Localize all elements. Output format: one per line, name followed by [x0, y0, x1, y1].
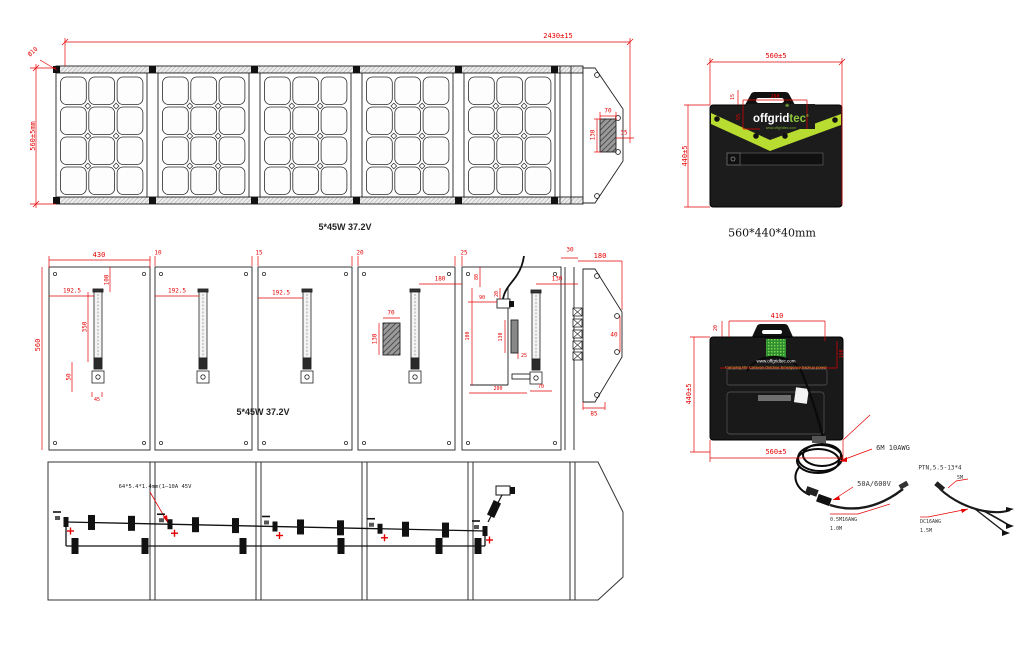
brand-logo: ❋ offgridtec® www.offgridtec.com	[747, 104, 815, 130]
dim-caseback-top-width: 410	[771, 312, 784, 320]
brand-flower-icon: ❋	[785, 101, 789, 109]
dim-back-leg-offset-1: 192.5	[63, 288, 81, 295]
dim-back-gap-1: 10	[154, 250, 161, 257]
drawing-art	[0, 0, 1022, 655]
case-back-art	[690, 321, 1014, 536]
plug-spec-label: PTN,5.5-13*4	[918, 465, 961, 472]
dim-back-pocket-height: 130	[372, 334, 379, 345]
dim-front-overall-width: 2430±15	[543, 32, 573, 40]
caseback-tagline: Camping RV Caravan Outdoor Emergency bac…	[725, 365, 827, 370]
dim-back-flap-width: 180	[594, 252, 607, 260]
dim-caseback-width: 560±5	[765, 448, 786, 456]
dim-back-p5-box: 90	[479, 295, 485, 301]
dim-back-p5-small: 20	[494, 291, 500, 297]
caseback-url: www.offgridtec.com	[757, 359, 796, 364]
dim-back-p5-leg: 130	[552, 276, 563, 283]
dim-back-leg-top: 100	[104, 275, 111, 286]
dim-back-leg-offset-2: 192.5	[168, 288, 186, 295]
dim-back-strip-width: 30	[566, 247, 573, 254]
dim-case-handle-inset: 15	[730, 94, 736, 100]
brand-tagline: www.offgridtec.com	[747, 126, 815, 130]
dim-back-pocket-width: 70	[387, 310, 394, 317]
front-view-caption: 5*45W 37.2V	[318, 222, 371, 232]
plug-length-label: 5M	[957, 475, 963, 481]
dim-case-logo-height: 55	[736, 114, 742, 120]
dim-back-panel-width: 430	[93, 251, 106, 259]
dim-case-front-height: 440±5	[681, 145, 689, 166]
dim-caseback-height: 440±5	[685, 383, 693, 404]
dim-back-p5-inner: 100	[465, 331, 471, 340]
dim-front-height: 560±5mm	[29, 121, 37, 151]
back-view-art	[49, 256, 622, 450]
dim-front-pocket-width: 70	[604, 108, 611, 115]
cable-main-label: 6M 10AWG	[876, 444, 910, 452]
dim-back-gap-4: 25	[460, 250, 467, 257]
dim-back-leg4-span: 180	[435, 276, 446, 283]
ext1-length-label: 1.0M	[830, 526, 842, 532]
dim-back-leg-bottom: 50	[66, 373, 73, 380]
dim-back-leg-offset-3: 192.5	[272, 290, 290, 297]
dim-back-leg-foot: 45	[94, 397, 100, 403]
back-view-caption: 5*45W 37.2V	[236, 407, 289, 417]
connector-label: 50A/600V	[857, 480, 891, 488]
dim-back-gap-3: 20	[356, 250, 363, 257]
dim-back-p5-pocket-gap: 25	[521, 353, 527, 359]
brand-wordmark: offgridtec®	[747, 109, 815, 126]
dim-case-logo-width: 260	[770, 94, 779, 100]
dim-back-p5-top: 80	[474, 274, 480, 280]
ext2-length-label: 1.5M	[920, 528, 932, 534]
dim-back-p5-bottom: 200	[493, 386, 502, 392]
case-size-caption: 560*440*40mm	[728, 227, 816, 240]
case-front-art	[684, 58, 845, 207]
technical-drawing-sheet: 2430±15 Ø10 560±5mm 70 130 35 5*45W 37.2…	[0, 0, 1022, 655]
dim-back-gap-2: 15	[255, 250, 262, 257]
dim-back-flap-bottom: 85	[590, 411, 597, 418]
dim-back-height: 560	[34, 339, 42, 352]
dim-caseback-inset: 20	[713, 325, 719, 331]
wiring-diode-label: 64*5.4*1.4mm(1—10A 45V	[119, 484, 192, 490]
dim-front-pocket-offset: 35	[620, 130, 627, 137]
dim-front-pocket-height: 130	[590, 130, 597, 141]
dim-back-p5-pocket-height: 130	[498, 332, 504, 341]
dim-back-leg-length: 350	[82, 322, 89, 333]
dim-case-front-width: 560±5	[765, 52, 786, 60]
wiring-view-art	[48, 462, 623, 600]
ext1-spec-label: 0.5M16AWG	[830, 517, 857, 523]
dim-caseback-side: 160	[839, 349, 845, 358]
ext2-spec-label: DC16AWG	[920, 519, 941, 525]
dim-back-p5-slot: 70	[538, 384, 544, 390]
dim-back-flap-tip: 40	[610, 332, 617, 339]
